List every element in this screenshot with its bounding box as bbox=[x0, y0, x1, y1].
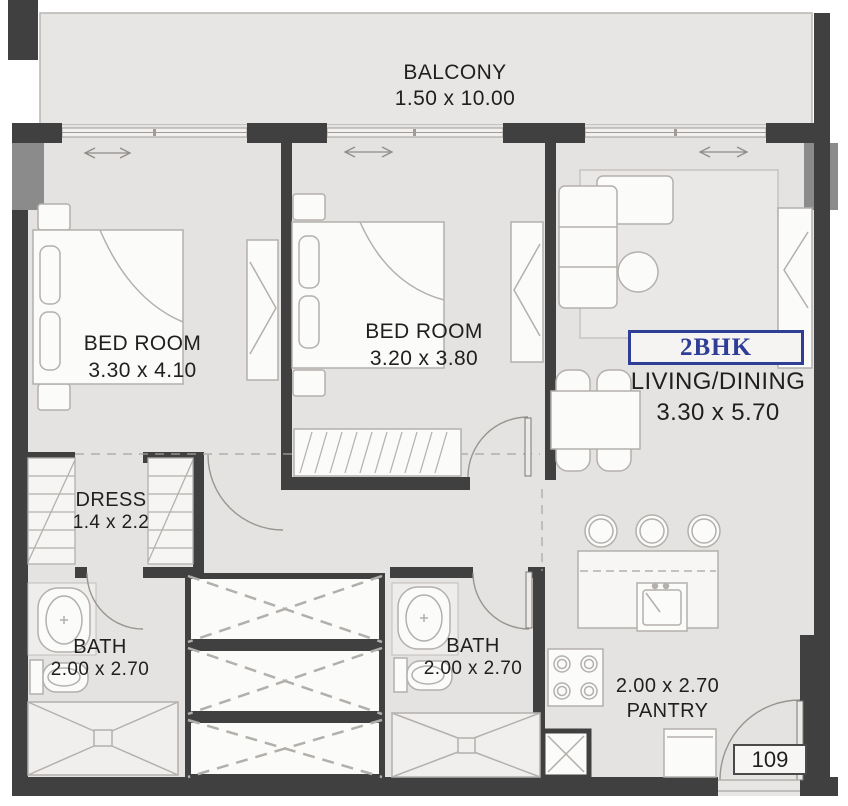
balcony-windows bbox=[62, 128, 766, 137]
unit-type-text: 2BHK bbox=[680, 334, 752, 362]
pantry-name: PANTRY bbox=[585, 699, 750, 724]
bedroom2-name: BED ROOM bbox=[318, 318, 530, 345]
pantry-label: 2.00 x 2.70 PANTRY bbox=[585, 674, 750, 724]
bedroom1-name: BED ROOM bbox=[35, 330, 250, 357]
bedroom2-dims: 3.20 x 3.80 bbox=[318, 345, 530, 372]
unit-number-text: 109 bbox=[752, 747, 789, 773]
bedroom2-label: BED ROOM 3.20 x 3.80 bbox=[318, 318, 530, 372]
floor-plan: BALCONY 1.50 x 10.00 BED ROOM 3.30 x 4.1… bbox=[0, 0, 848, 806]
living-dining-label: LIVING/DINING 3.30 x 5.70 bbox=[598, 366, 838, 428]
dress-dims: 1.4 x 2.2 bbox=[48, 512, 174, 534]
dress-name: DRESS bbox=[48, 488, 174, 512]
bath1-name: BATH bbox=[30, 636, 170, 658]
bath2-name: BATH bbox=[402, 635, 544, 657]
pantry-dims: 2.00 x 2.70 bbox=[585, 674, 750, 699]
bath1-label: BATH 2.00 x 2.70 bbox=[30, 636, 170, 681]
living-dining-name: LIVING/DINING bbox=[598, 366, 838, 397]
unit-type-badge: 2BHK bbox=[628, 330, 804, 365]
balcony-label: BALCONY 1.50 x 10.00 bbox=[330, 60, 580, 112]
bedroom1-dims: 3.30 x 4.10 bbox=[35, 357, 250, 384]
dress-label: DRESS 1.4 x 2.2 bbox=[48, 488, 174, 534]
living-dining-dims: 3.30 x 5.70 bbox=[598, 397, 838, 428]
bath1-dims: 2.00 x 2.70 bbox=[30, 658, 170, 681]
unit-number-badge: 109 bbox=[733, 744, 807, 775]
balcony-dims: 1.50 x 10.00 bbox=[330, 86, 580, 112]
bath2-dims: 2.00 x 2.70 bbox=[402, 657, 544, 680]
bedroom1-label: BED ROOM 3.30 x 4.10 bbox=[35, 330, 250, 384]
bath2-label: BATH 2.00 x 2.70 bbox=[402, 635, 544, 680]
balcony-name: BALCONY bbox=[330, 60, 580, 86]
